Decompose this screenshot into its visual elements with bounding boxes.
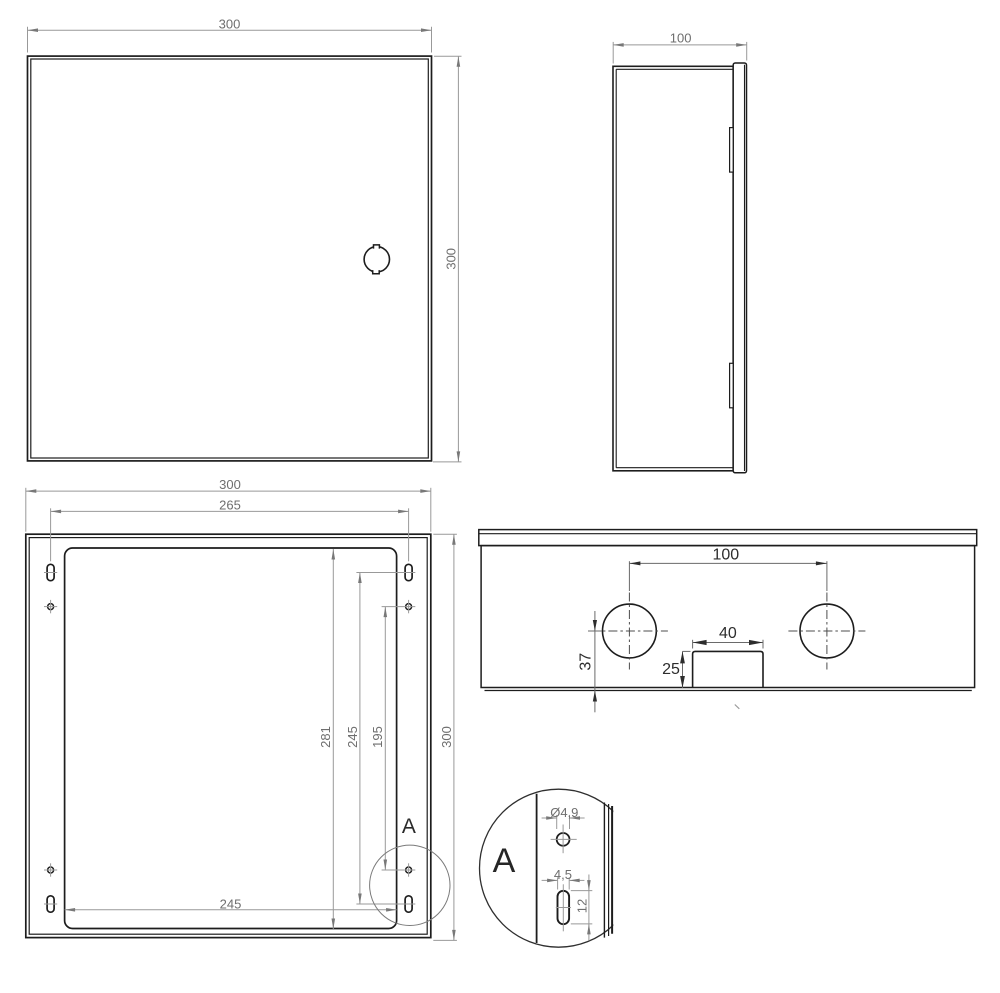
svg-text:300: 300 <box>219 477 241 492</box>
svg-text:245: 245 <box>345 726 360 748</box>
svg-text:100: 100 <box>670 31 692 46</box>
svg-text:195: 195 <box>370 726 385 748</box>
svg-text:300: 300 <box>439 726 454 748</box>
svg-text:281: 281 <box>318 726 333 748</box>
svg-text:25: 25 <box>662 661 680 678</box>
svg-text:40: 40 <box>719 625 737 642</box>
svg-text:37: 37 <box>578 653 595 671</box>
svg-text:12: 12 <box>574 899 589 913</box>
svg-text:265: 265 <box>219 497 241 512</box>
svg-text:300: 300 <box>444 248 459 270</box>
svg-text:A: A <box>402 815 416 838</box>
svg-text:4,5: 4,5 <box>554 867 572 882</box>
svg-text:300: 300 <box>219 17 241 32</box>
svg-text:245: 245 <box>220 896 242 911</box>
svg-text:100: 100 <box>712 546 739 563</box>
svg-text:A: A <box>493 842 516 880</box>
svg-text:Ø4,9: Ø4,9 <box>550 805 578 820</box>
